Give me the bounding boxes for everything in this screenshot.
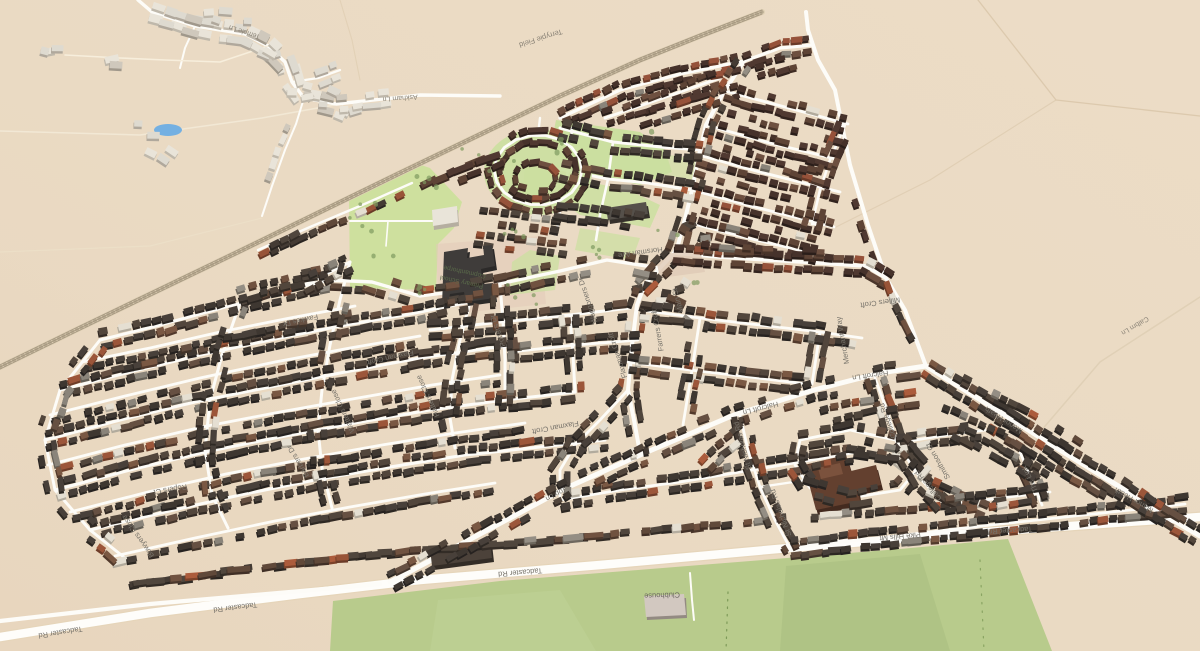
svg-text:Clubhouse: Clubhouse (644, 590, 680, 600)
